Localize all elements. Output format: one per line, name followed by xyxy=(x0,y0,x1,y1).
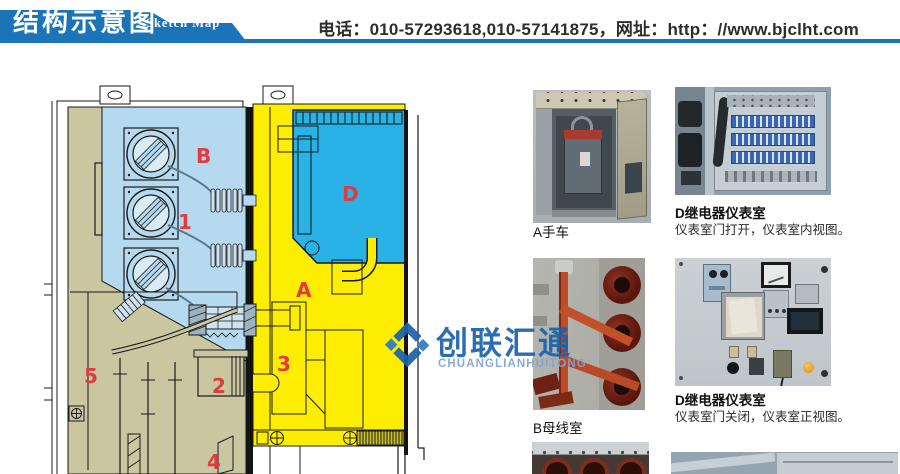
button xyxy=(768,309,772,313)
photo-partial-panel xyxy=(671,452,898,474)
switch-label xyxy=(709,286,725,290)
caption-subtitle: 仪表室门打开，仪表室内视图。 xyxy=(675,223,850,238)
label-d: D xyxy=(342,182,359,206)
fuse-holder xyxy=(747,346,757,358)
display-unit xyxy=(787,308,823,334)
cabinet-top-edge xyxy=(57,101,243,107)
center-partition-wall xyxy=(246,107,253,474)
handcart-nameplate xyxy=(580,152,590,166)
company-watermark: 创联汇通 CHUANGLIANHUITONG xyxy=(382,316,582,380)
caption-title: D继电器仪表室 xyxy=(675,393,850,408)
caption-subtitle: 仪表室门关闭，仪表室正视图。 xyxy=(675,410,850,425)
caption-title: D继电器仪表室 xyxy=(675,206,850,221)
label-a: A xyxy=(296,278,312,302)
company-logo-icon xyxy=(382,320,430,372)
door-hinge-column xyxy=(705,87,714,195)
screw xyxy=(679,376,683,380)
handcart-label-strip xyxy=(564,130,602,139)
button xyxy=(782,309,786,313)
photo-caption-d-open: D继电器仪表室 仪表室门打开，仪表室内视图。 xyxy=(675,206,850,238)
lifting-lug xyxy=(100,86,130,104)
panel-seam xyxy=(783,461,893,463)
bushing xyxy=(124,187,178,239)
wiring-duct xyxy=(725,171,817,182)
label-5: 5 xyxy=(84,364,98,388)
push-button xyxy=(727,362,739,374)
fuse-holder xyxy=(729,346,739,358)
relay-block xyxy=(678,133,702,167)
contact-info: 电话：010-57293618,010-57141875，网址：http：//w… xyxy=(318,15,859,40)
bolt xyxy=(344,432,357,445)
photo-a-handcart xyxy=(533,90,651,223)
primary-bushings xyxy=(124,128,178,300)
screw xyxy=(679,262,683,266)
photo-d-relay-room-closed xyxy=(675,258,831,386)
label-2: 2 xyxy=(212,374,226,398)
busbar-elbow xyxy=(538,391,574,409)
terminal-strip xyxy=(731,151,815,164)
busbar-bushing xyxy=(603,266,641,304)
door-bolt xyxy=(821,266,828,273)
meter-needle xyxy=(768,276,784,283)
switch-knob xyxy=(709,270,717,278)
display-screen xyxy=(791,312,819,330)
relay-block xyxy=(681,171,701,185)
panel-meter xyxy=(761,262,791,288)
photo-caption-d-closed: D继电器仪表室 仪表室门关闭，仪表室正视图。 xyxy=(675,393,850,425)
control-module xyxy=(763,290,789,318)
page-title: 结构示意图 xyxy=(13,2,158,39)
label-1: 1 xyxy=(178,210,192,234)
open-door xyxy=(617,98,647,219)
caption-text: A手车 xyxy=(533,225,569,240)
catalog-page: 结构示意图 Sketch Map 电话：010-57293618,010-571… xyxy=(0,0,900,474)
label-b: B xyxy=(196,144,211,168)
label-3: 3 xyxy=(277,352,291,376)
photo-d-relay-room-open xyxy=(675,87,831,195)
company-name-en: CHUANGLIANHUITONG xyxy=(438,358,587,370)
indicator-lamp xyxy=(803,362,814,373)
lifting-lug xyxy=(263,86,293,104)
right-partition-wall xyxy=(404,110,408,455)
bushing-bore xyxy=(614,277,630,293)
interlock-cable xyxy=(780,378,784,386)
relay-block xyxy=(678,101,702,127)
photo-partial-bushings xyxy=(532,442,649,474)
key-interlock xyxy=(773,350,792,378)
page-title-english: Sketch Map xyxy=(146,16,220,31)
small-meter xyxy=(795,284,819,304)
bolt xyxy=(271,432,284,445)
recorder-paper xyxy=(728,298,757,335)
metal-rail xyxy=(532,442,649,455)
selector-switch xyxy=(749,358,764,375)
caption-text: B母线室 xyxy=(533,421,583,436)
bushing xyxy=(124,128,178,180)
switch-knob xyxy=(720,270,728,278)
terminal-strip xyxy=(731,133,815,146)
door-window xyxy=(625,162,642,194)
support-insulator xyxy=(533,284,549,295)
terminal-strip xyxy=(731,115,815,128)
module-row xyxy=(727,95,815,107)
panel-right xyxy=(777,452,898,474)
photo-caption-a: A手车 xyxy=(533,225,569,240)
photo-caption-b: B母线室 xyxy=(533,421,583,436)
label-4: 4 xyxy=(207,450,221,474)
cabinet-rear-wall xyxy=(44,101,57,474)
chart-recorder xyxy=(721,292,765,340)
door-bolt xyxy=(821,370,828,377)
cabinet-frame xyxy=(536,109,552,215)
structure-diagram: B 1 D A 2 3 5 4 xyxy=(30,75,475,474)
cabinet-sill xyxy=(552,210,616,217)
button xyxy=(775,309,779,313)
